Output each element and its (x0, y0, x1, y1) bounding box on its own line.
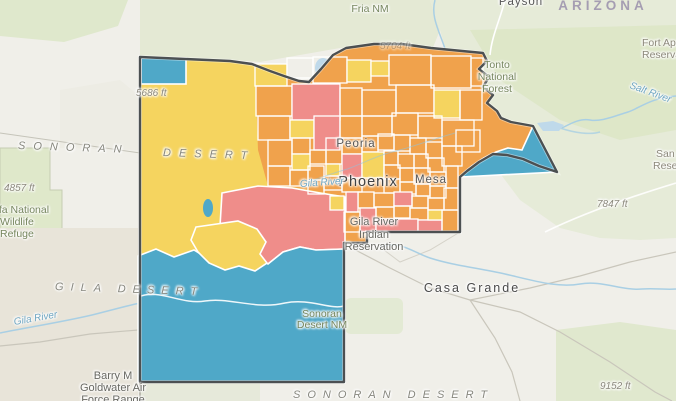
parcel[interactable] (292, 84, 340, 120)
parcel[interactable] (434, 90, 460, 118)
parcel[interactable] (342, 154, 362, 178)
parcel[interactable] (347, 60, 371, 82)
parcel[interactable] (290, 120, 314, 138)
parcel[interactable] (330, 196, 344, 210)
small-blue-area[interactable] (203, 199, 213, 217)
region-teal-northwest[interactable] (141, 58, 186, 84)
map-viewport[interactable]: Fria NM Payson ARIZONA Fort Apache Reser… (0, 0, 676, 401)
map-canvas[interactable] (0, 0, 676, 401)
parcel[interactable] (292, 154, 310, 170)
parcel[interactable] (346, 192, 358, 212)
parcel[interactable] (371, 61, 389, 76)
parcel[interactable] (394, 192, 412, 206)
parcel[interactable] (360, 208, 376, 232)
parcel[interactable] (314, 116, 340, 150)
parcel[interactable] (326, 164, 340, 176)
parcel[interactable] (428, 210, 442, 220)
